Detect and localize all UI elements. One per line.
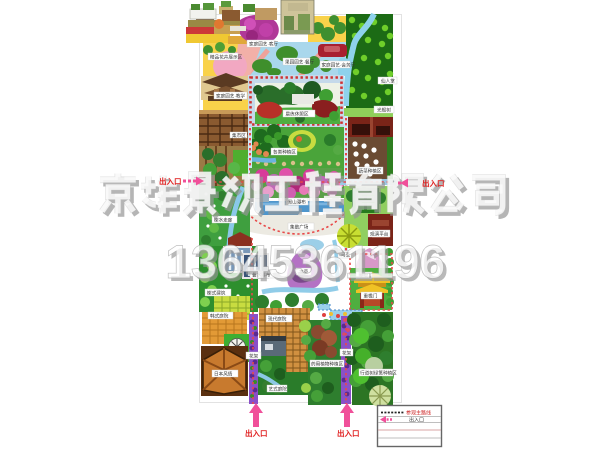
svg-text:韩式庭院: 韩式庭院 <box>210 313 229 320</box>
svg-text:出入口: 出入口 <box>422 178 445 188</box>
svg-text:日本风情: 日本风情 <box>214 371 233 378</box>
svg-text:家庭园艺·客厅: 家庭园艺·客厅 <box>249 41 278 48</box>
svg-text:出入口: 出入口 <box>337 428 360 438</box>
svg-text:现代庭院: 现代庭院 <box>268 316 287 323</box>
svg-text:出入口: 出入口 <box>159 176 182 186</box>
svg-text:行道树绿篱种植区: 行道树绿篱种植区 <box>360 370 397 377</box>
svg-text:艺式庭院: 艺式庭院 <box>269 386 288 393</box>
svg-text:家庭园艺·会务厅: 家庭园艺·会务厅 <box>322 62 356 69</box>
svg-text:集市区: 集市区 <box>232 132 246 139</box>
svg-text:假山瀑布: 假山瀑布 <box>288 199 307 206</box>
svg-text:重檐门: 重檐门 <box>364 293 378 300</box>
svg-text:家庭园艺·教学: 家庭园艺·教学 <box>216 93 245 100</box>
svg-text:出入口: 出入口 <box>245 428 268 438</box>
svg-text:出入口: 出入口 <box>409 417 424 424</box>
svg-text:各类种植区: 各类种植区 <box>273 149 296 156</box>
svg-text:13645361196: 13645361196 <box>165 235 444 288</box>
svg-text:药用植物种植区: 药用植物种植区 <box>311 361 344 368</box>
svg-text:花架: 花架 <box>249 353 259 360</box>
svg-text:晨练休憩区: 晨练休憩区 <box>286 111 309 118</box>
svg-text:花架: 花架 <box>342 350 352 357</box>
svg-text:果园园艺·餐厅: 果园园艺·餐厅 <box>285 59 314 66</box>
svg-text:集散广场: 集散广场 <box>290 224 309 231</box>
svg-text:精品花卉展示区: 精品花卉展示区 <box>210 54 243 61</box>
svg-text:仙人掌: 仙人掌 <box>381 78 395 85</box>
svg-text:光棍树: 光棍树 <box>377 107 391 114</box>
svg-text:参观主路线: 参观主路线 <box>406 410 431 417</box>
